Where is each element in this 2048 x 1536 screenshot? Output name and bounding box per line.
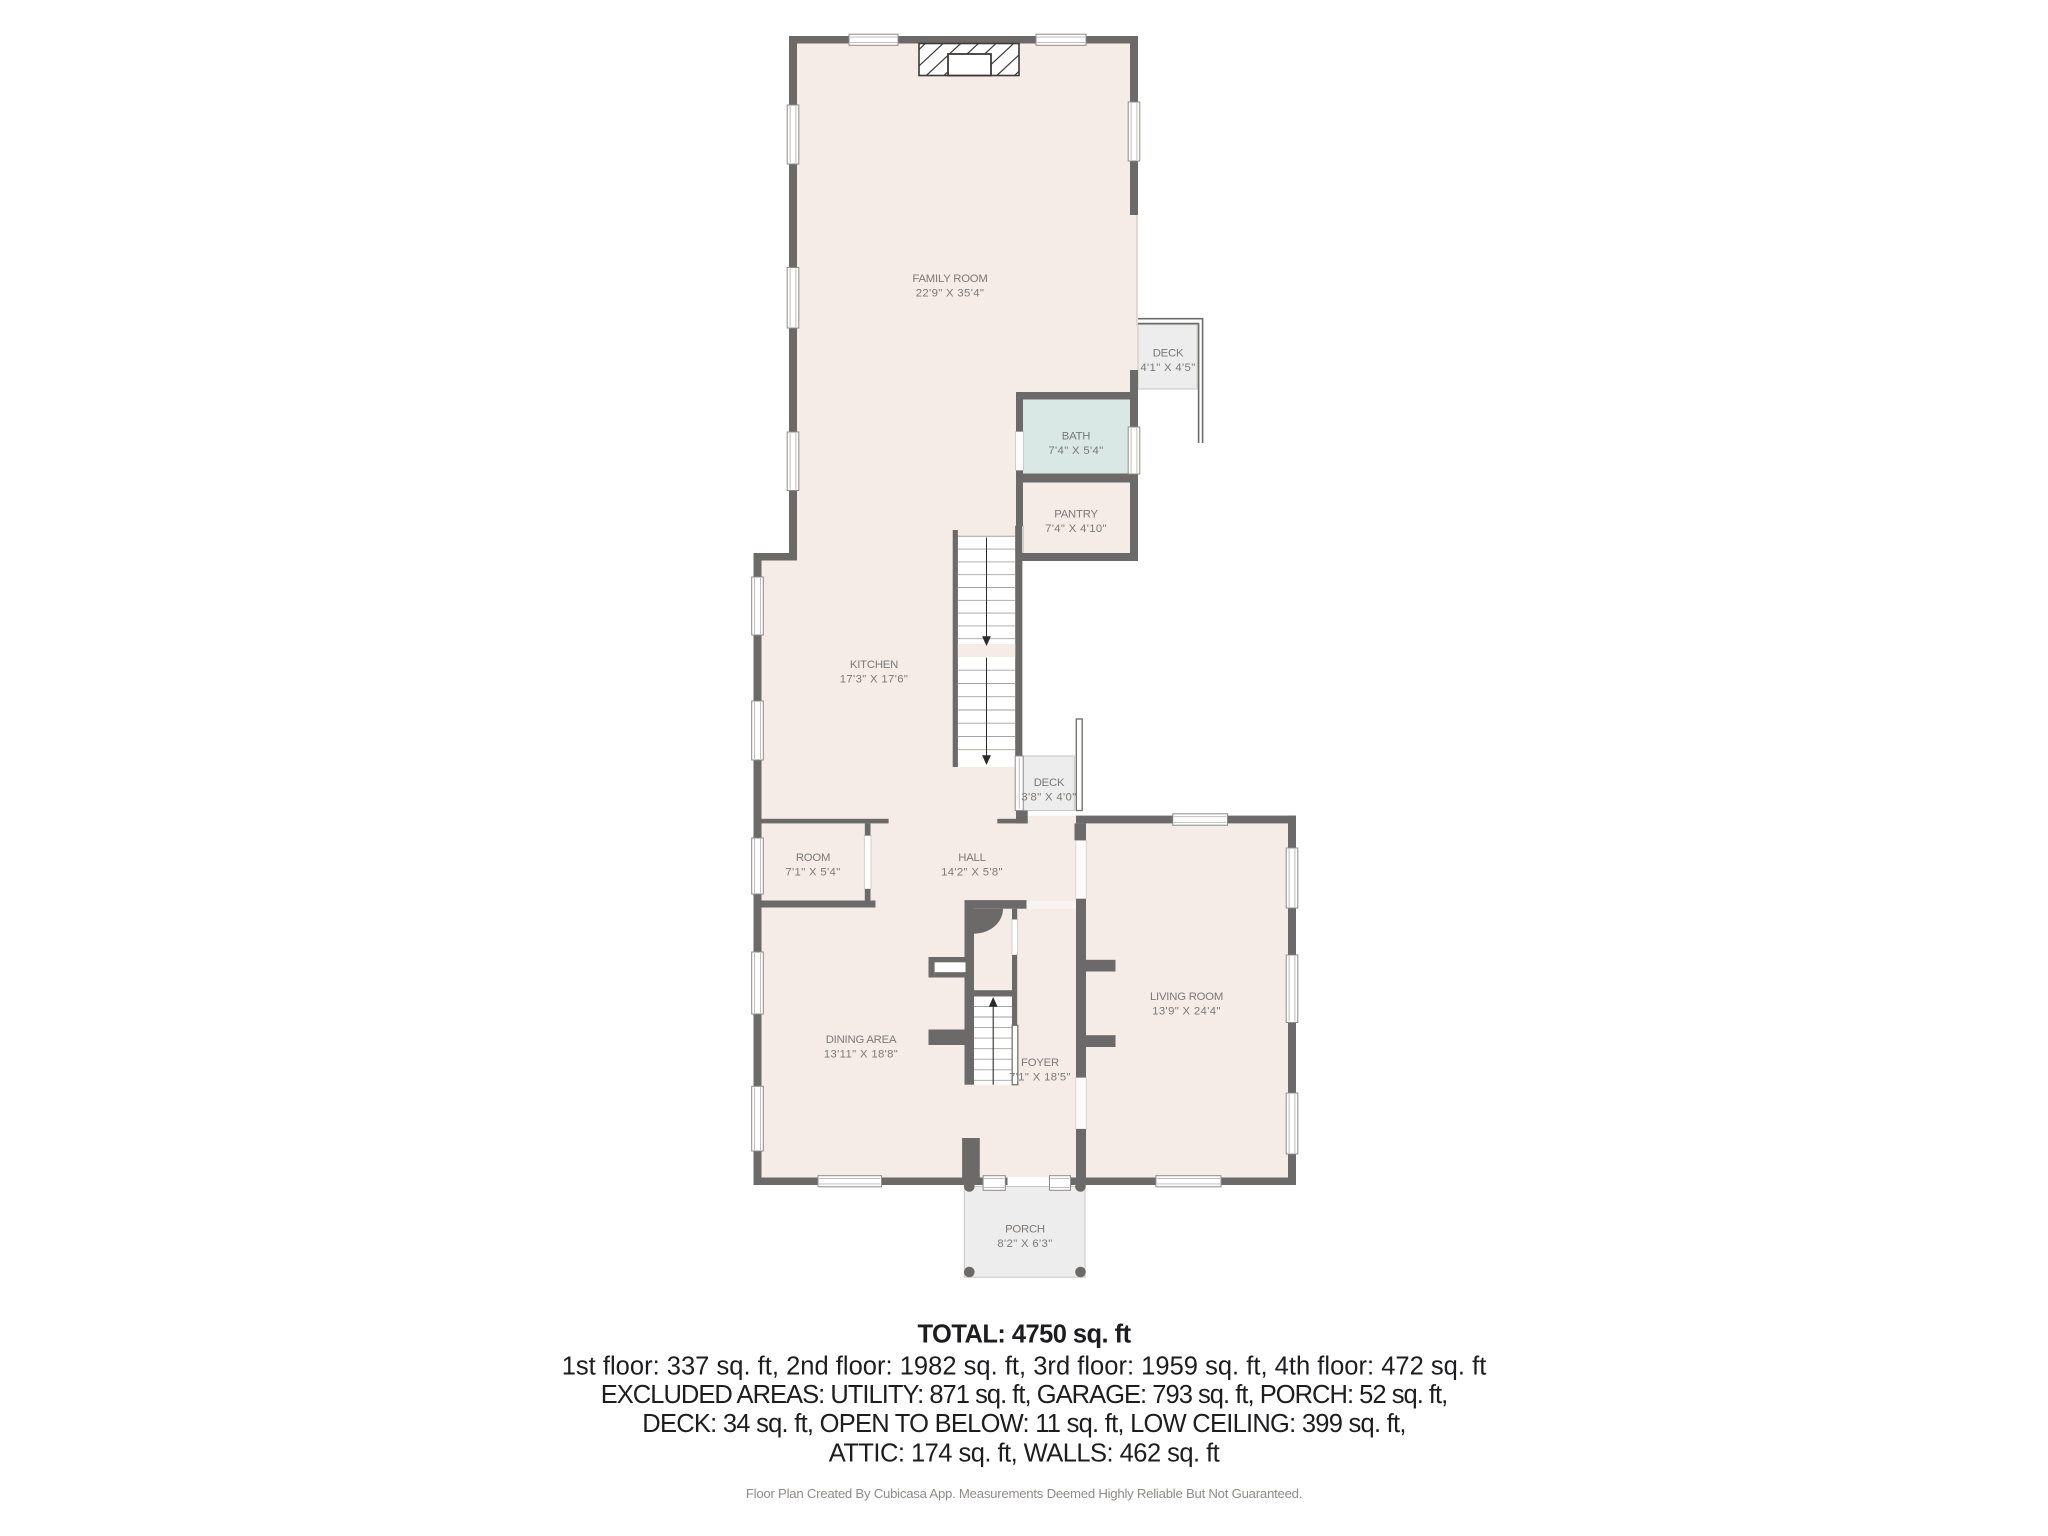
svg-text:HALL: HALL — [958, 852, 985, 864]
svg-text:TOTAL: 4750 sq. ft: TOTAL: 4750 sq. ft — [917, 1321, 1131, 1349]
svg-text:7'1" X 18'5": 7'1" X 18'5" — [1009, 1071, 1071, 1083]
svg-text:FOYER: FOYER — [1021, 1057, 1059, 1069]
svg-text:DECK: DECK — [1153, 348, 1184, 360]
svg-text:7'4" X 5'4": 7'4" X 5'4" — [1048, 445, 1103, 457]
svg-text:13'9" X 24'4": 13'9" X 24'4" — [1152, 1005, 1220, 1017]
svg-text:BATH: BATH — [1062, 431, 1091, 443]
svg-text:7'4" X 4'10": 7'4" X 4'10" — [1045, 523, 1107, 535]
svg-text:22'9" X 35'4": 22'9" X 35'4" — [916, 287, 984, 299]
svg-text:ATTIC: 174 sq. ft, WALLS: 462: ATTIC: 174 sq. ft, WALLS: 462 sq. ft — [829, 1440, 1220, 1468]
svg-text:LIVING ROOM: LIVING ROOM — [1150, 991, 1223, 1003]
svg-text:17'3" X 17'6": 17'3" X 17'6" — [840, 673, 908, 685]
svg-text:KITCHEN: KITCHEN — [850, 659, 898, 671]
svg-text:PORCH: PORCH — [1005, 1224, 1045, 1236]
svg-text:7'1" X 5'4": 7'1" X 5'4" — [785, 866, 840, 878]
svg-text:EXCLUDED AREAS: UTILITY: 871 s: EXCLUDED AREAS: UTILITY: 871 sq. ft, GAR… — [601, 1381, 1448, 1409]
svg-text:DECK: DECK — [1034, 777, 1065, 789]
svg-text:DINING AREA: DINING AREA — [826, 1034, 897, 1046]
svg-text:4'1" X 4'5": 4'1" X 4'5" — [1140, 362, 1195, 374]
svg-text:13'11" X 18'8": 13'11" X 18'8" — [824, 1048, 898, 1060]
svg-text:14'2" X 5'8": 14'2" X 5'8" — [941, 866, 1003, 878]
svg-text:3'8" X 4'0": 3'8" X 4'0" — [1021, 791, 1076, 803]
svg-text:Floor Plan Created By Cubicasa: Floor Plan Created By Cubicasa App. Meas… — [746, 1486, 1302, 1501]
svg-text:1st floor: 337 sq. ft, 2nd flo: 1st floor: 337 sq. ft, 2nd floor: 1982 s… — [562, 1352, 1487, 1380]
svg-text:FAMILY ROOM: FAMILY ROOM — [912, 273, 987, 285]
svg-text:8'2" X 6'3": 8'2" X 6'3" — [997, 1238, 1052, 1250]
svg-text:DECK: 34 sq. ft, OPEN TO BELOW: DECK: 34 sq. ft, OPEN TO BELOW: 11 sq. f… — [642, 1410, 1405, 1438]
svg-text:PANTRY: PANTRY — [1054, 509, 1098, 521]
svg-text:ROOM: ROOM — [796, 852, 830, 864]
